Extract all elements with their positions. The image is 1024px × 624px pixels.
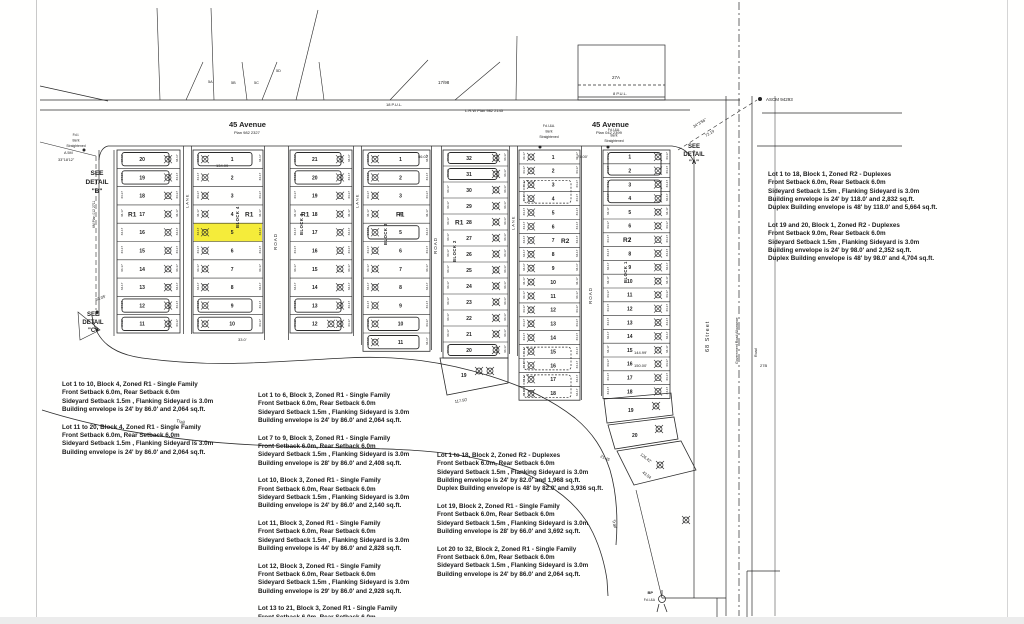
edge-dimension-label: 34.17 <box>503 201 507 209</box>
fan-lot-label: 5B <box>231 81 236 85</box>
edge-dimension-label: 34.17 <box>175 282 179 290</box>
survey-marker-icon <box>201 283 209 291</box>
lot-number-label: 8 <box>628 251 631 257</box>
left-plan-label: 6M Plan 012 2711 <box>92 201 96 228</box>
edge-dimension-label: 34.17 <box>258 154 262 162</box>
survey-marker-icon <box>527 389 535 397</box>
edge-dimension-label: 34.17 <box>446 313 450 321</box>
edge-dimension-label: 34.17 <box>575 194 579 202</box>
survey-marker-icon <box>486 367 494 375</box>
survey-marker-icon <box>475 367 483 375</box>
edge-dimension-label: 34.17 <box>120 282 124 290</box>
svg-text:SEE: SEE <box>87 312 99 318</box>
survey-marker-icon <box>201 173 209 181</box>
lot-number-label: 19 <box>628 408 634 414</box>
edge-dimension-label: 34.17 <box>522 208 526 216</box>
survey-marker-icon <box>371 302 379 310</box>
lot-number-label: 14 <box>550 335 556 341</box>
edge-dimension-label: 34.17 <box>175 227 179 235</box>
edge-dimension-label: 34.17 <box>606 331 610 339</box>
edge-dimension-label: 34.17 <box>446 281 450 289</box>
survey-marker-icon <box>336 228 344 236</box>
edge-dimension-label: 34.17 <box>258 191 262 199</box>
edge-dimension-label: 34.17 <box>120 209 124 217</box>
survey-marker-icon <box>527 167 535 175</box>
survey-marker-icon <box>492 314 500 322</box>
survey-marker-icon <box>201 192 209 200</box>
survey-marker-icon <box>371 228 379 236</box>
survey-marker-icon <box>164 192 172 200</box>
edge-dimension-label: 34.17 <box>606 221 610 229</box>
edge-dimension-label: 34.17 <box>120 172 124 180</box>
edge-dimension-label: 34.17 <box>446 169 450 177</box>
edge-dimension-label: 34.17 <box>575 333 579 341</box>
edge-dimension-label: 34.17 <box>120 264 124 272</box>
survey-marker-icon <box>371 210 379 218</box>
edge-dimension-label: 34.17 <box>606 276 610 284</box>
lot-number-label: 20 <box>312 175 318 181</box>
edge-dimension-label: 34.17 <box>175 301 179 309</box>
lot-number-label: 5 <box>552 210 555 216</box>
dimension-label: 43.54 <box>641 470 653 481</box>
edge-dimension-label: 34.17 <box>522 235 526 243</box>
survey-marker-icon <box>527 278 535 286</box>
lot-number-label: 8 <box>552 252 555 258</box>
block-label: BLOCK 1 <box>623 261 628 283</box>
edge-dimension-label: 34.17 <box>575 221 579 229</box>
lane-label-3: LANE <box>511 216 516 230</box>
survey-marker-icon <box>492 266 500 274</box>
lot-number-label: 10 <box>229 322 235 328</box>
found-iron-note-line: Straightened <box>539 135 558 139</box>
survey-marker-icon <box>527 195 535 203</box>
survey-marker-icon <box>492 234 500 242</box>
see-detail-c: SEE DETAIL "C" <box>82 312 104 334</box>
survey-marker-icon <box>527 181 535 189</box>
survey-marker-icon <box>654 236 662 244</box>
lot-strip-block3-west: 2134.1734.172034.1734.171934.1734.171834… <box>290 150 352 333</box>
lot-number-label: 6 <box>399 248 402 254</box>
lane-label-2: LANE <box>355 194 360 208</box>
edge-dimension-label: 34.17 <box>347 172 351 180</box>
survey-marker-icon <box>201 320 209 328</box>
lot-number-label: 10 <box>398 322 404 328</box>
ascm-label: ASCM 94293 <box>766 97 793 102</box>
street-68-label: 68 Street <box>705 321 711 352</box>
lot-number-label: 6 <box>231 248 234 254</box>
edge-dimension-label: 34.17 <box>522 221 526 229</box>
edge-dimension-label: 34.17 <box>366 246 370 254</box>
found-iron-note-line: Straightened <box>66 144 85 148</box>
lot-number-label: 3 <box>231 194 234 200</box>
edge-dimension-label: 34.17 <box>665 179 669 187</box>
edge-dimension-label: 34.17 <box>503 153 507 161</box>
edge-dimension-label: 34.17 <box>196 209 200 217</box>
lot-strip-block3-east: 134.1734.17234.1734.17334.1734.17434.173… <box>363 150 430 351</box>
edge-dimension-label: 34.17 <box>425 172 429 180</box>
found-iron-notes: Fd.I.BentStraightenedFd.I.&A.BentStraigh… <box>66 124 623 148</box>
lot-number-label: 13 <box>312 303 318 309</box>
edge-dimension-label: 34.17 <box>575 291 579 299</box>
found-iron-note-line: Fd.I.&A. <box>543 124 555 128</box>
lot-number-label: 14 <box>627 334 633 340</box>
edge-dimension-label: 34.17 <box>425 264 429 272</box>
lot-number-label: 3 <box>399 194 402 200</box>
block-label: BLOCK 4 <box>235 206 240 228</box>
zone-label: R1 <box>128 212 137 219</box>
lot-number-label: 27 <box>466 236 472 242</box>
lot-number-label: 17 <box>627 376 633 382</box>
zone-label: R2 <box>623 237 632 244</box>
survey-marker-icon <box>656 461 664 469</box>
lot-number-label: 4 <box>231 212 234 218</box>
edge-dimension-label: 34.17 <box>196 282 200 290</box>
lot-number-label: 17 <box>312 230 318 236</box>
lot-number-label: 1 <box>231 157 234 163</box>
survey-marker-icon <box>336 173 344 181</box>
survey-marker-icon <box>371 192 379 200</box>
scan-edge-left <box>36 0 37 617</box>
edge-dimension-label: 34.17 <box>293 154 297 162</box>
lot-number-label: 9 <box>628 265 631 271</box>
edge-dimension-label: 34.17 <box>347 264 351 272</box>
edge-dimension-label: 34.17 <box>575 263 579 271</box>
block1-sliver <box>617 441 696 524</box>
edge-dimension-label: 34.17 <box>120 227 124 235</box>
left-road-lines <box>99 150 114 336</box>
survey-marker-icon <box>336 192 344 200</box>
lot-strip-block1: 134.1734.17234.1734.17334.1734.17434.173… <box>603 150 670 398</box>
edge-dimension-label: 34.17 <box>575 277 579 285</box>
survey-marker-icon <box>654 263 662 271</box>
lot-number-label: 19 <box>139 175 145 181</box>
scan-edge-bottom <box>0 617 1024 624</box>
edge-dimension-label: 34.17 <box>606 359 610 367</box>
found-iron-note-line: Fd.I.&A. <box>608 128 620 132</box>
edge-dimension-label: 34.17 <box>575 305 579 313</box>
zone-label: R1 <box>455 220 464 227</box>
fan-lot-label: 5C <box>254 81 259 85</box>
edge-dimension-label: 34.17 <box>366 282 370 290</box>
edge-dimension-label: 34.17 <box>347 209 351 217</box>
lrw-plan-label: L.R.W Plan 982 2145 <box>465 108 504 113</box>
survey-marker-icon <box>164 173 172 181</box>
left-bearing-label: 33°18'12" <box>58 158 75 162</box>
edge-dimension-label: 34.17 <box>446 217 450 225</box>
lot-number-label: 9 <box>552 266 555 272</box>
fan-lot-label: 5A <box>208 80 213 84</box>
lot-number-label: 16 <box>312 248 318 254</box>
edge-dimension-label: 34.17 <box>522 277 526 285</box>
survey-marker-icon <box>527 348 535 356</box>
edge-dimension-label: 34.17 <box>366 172 370 180</box>
lot-number-label: 18 <box>312 212 318 218</box>
survey-marker-icon <box>527 361 535 369</box>
lot-number-label: 5 <box>231 230 234 236</box>
edge-dimension-label: 34.17 <box>522 152 526 160</box>
see-detail-a: SEE DETAIL "A" <box>683 144 705 166</box>
edge-dimension-label: 34.17 <box>665 317 669 325</box>
edge-dimension-label: 34.17 <box>258 209 262 217</box>
survey-marker-icon <box>371 338 379 346</box>
survey-marker-icon <box>527 153 535 161</box>
edge-dimension-label: 34.17 <box>366 191 370 199</box>
dimension-label: 126.42' <box>639 452 653 464</box>
lot-number-label: 6 <box>628 224 631 230</box>
survey-marker-icon <box>654 222 662 230</box>
lot-number-label: 12 <box>627 307 633 313</box>
survey-marker-icon <box>527 306 535 314</box>
lot-number-label: 15 <box>139 248 145 254</box>
lot-27a-label: 27A <box>612 75 620 80</box>
lot-number-label: 13 <box>627 320 633 326</box>
dimension-label: 134.99 <box>216 163 229 168</box>
fraction-label: 17/98 <box>438 80 450 85</box>
edge-dimension-label: 34.17 <box>196 319 200 327</box>
edge-dimension-label: 34.17 <box>446 265 450 273</box>
block2-lot19: 19 <box>440 358 508 395</box>
dimension-label: 117.50' <box>454 397 468 404</box>
edge-dimension-label: 34.17 <box>503 249 507 257</box>
lot-number-label: 16 <box>627 362 633 368</box>
lot-number-label: 29 <box>466 204 472 210</box>
survey-marker-icon <box>336 155 344 163</box>
edge-dimension-label: 34.17 <box>575 208 579 216</box>
edge-dimension-label: 34.17 <box>522 249 526 257</box>
gov-road-allowance-label: Government Road Allowance <box>735 317 739 364</box>
survey-marker-icon <box>201 302 209 310</box>
edge-dimension-label: 34.17 <box>665 235 669 243</box>
lot-number-label: 12 <box>550 308 556 314</box>
edge-dimension-label: 34.17 <box>665 207 669 215</box>
highlighted-lot <box>194 223 262 241</box>
survey-marker-icon <box>336 247 344 255</box>
edge-dimension-label: 34.17 <box>575 374 579 382</box>
lot-number-label: 7 <box>552 238 555 244</box>
edge-dimension-label: 34.17 <box>522 291 526 299</box>
survey-marker-icon <box>492 218 500 226</box>
lot-number-label: 25 <box>466 268 472 274</box>
lot-number-label: 20 <box>139 157 145 163</box>
edge-dimension-label: 34.17 <box>665 193 669 201</box>
edge-dimension-label: 34.17 <box>293 264 297 272</box>
edge-dimension-label: 34.17 <box>347 282 351 290</box>
survey-marker-icon <box>492 298 500 306</box>
lot-number-label: 12 <box>312 322 318 328</box>
survey-marker-icon <box>654 305 662 313</box>
lot-number-label: 5 <box>628 210 631 216</box>
survey-marker-icon <box>371 155 379 163</box>
edge-dimension-label: 34.17 <box>120 319 124 327</box>
survey-marker-icon <box>336 265 344 273</box>
lot-number-label: 5 <box>399 230 402 236</box>
survey-marker-icon <box>652 402 660 410</box>
lot-number-label: 23 <box>466 300 472 306</box>
lot-number-label: 18 <box>627 389 633 395</box>
lot-number-label: 11 <box>398 340 404 346</box>
edge-dimension-label: 34.17 <box>606 386 610 394</box>
bp-marker-sublabel: Fd.I.&A <box>644 598 656 602</box>
edge-dimension-label: 34.17 <box>522 166 526 174</box>
survey-marker-icon <box>655 425 663 433</box>
edge-dimension-label: 34.17 <box>347 301 351 309</box>
edge-dimension-label: 34.17 <box>425 282 429 290</box>
bp-survey-marker-icon <box>657 590 667 612</box>
lot-number-label: 32 <box>466 156 472 162</box>
survey-marker-icon <box>492 186 500 194</box>
survey-marker-icon <box>164 320 172 328</box>
survey-marker-icon <box>654 319 662 327</box>
edge-dimension-label: 34.17 <box>425 246 429 254</box>
edge-dimension-label: 34.17 <box>665 304 669 312</box>
edge-dimension-label: 34.17 <box>606 317 610 325</box>
survey-marker-icon <box>164 265 172 273</box>
survey-marker-icon <box>527 236 535 244</box>
lot-number-label: 2 <box>628 169 631 175</box>
survey-marker-icon <box>336 320 344 328</box>
survey-marker-icon <box>371 320 379 328</box>
edge-dimension-label: 34.17 <box>196 191 200 199</box>
dimension-label: 144.99' <box>634 350 647 355</box>
edge-dimension-label: 34.17 <box>665 166 669 174</box>
lot-number-label: 18 <box>550 391 556 397</box>
irregular-lots: 191920 <box>440 358 696 524</box>
lot-number-label: 7 <box>231 267 234 273</box>
edge-dimension-label: 34.17 <box>606 345 610 353</box>
edge-dimension-label: 34.17 <box>175 209 179 217</box>
lot-number-label: 19 <box>312 194 318 200</box>
edge-dimension-label: 34.17 <box>606 262 610 270</box>
survey-marker-icon <box>492 282 500 290</box>
edge-dimension-label: 34.17 <box>425 191 429 199</box>
lot-number-label: 13 <box>550 322 556 328</box>
lot-number-label: 7 <box>399 267 402 273</box>
edge-dimension-label: 34.17 <box>366 209 370 217</box>
survey-marker-icon <box>527 250 535 258</box>
block-label: BLOCK 3 <box>383 223 388 245</box>
survey-marker-icon <box>336 210 344 218</box>
lot-number-label: 30 <box>466 188 472 194</box>
edge-dimension-label: 34.17 <box>366 264 370 272</box>
survey-marker-icon <box>371 247 379 255</box>
survey-marker-icon <box>527 222 535 230</box>
edge-dimension-label: 34.17 <box>665 152 669 160</box>
survey-marker-icon <box>654 332 662 340</box>
lot-strip-block2-west: 3234.1734.173134.1734.173034.1734.172934… <box>443 150 508 358</box>
edge-dimension-label: 34.17 <box>347 319 351 327</box>
edge-dimension-label: 34.17 <box>606 248 610 256</box>
edge-dimension-label: 34.17 <box>575 347 579 355</box>
survey-marker-icon <box>164 283 172 291</box>
edge-dimension-label: 34.17 <box>606 290 610 298</box>
survey-marker-icon <box>527 320 535 328</box>
survey-marker-icon <box>201 247 209 255</box>
edge-dimension-label: 34.17 <box>446 297 450 305</box>
edge-dimension-label: 34.17 <box>606 304 610 312</box>
survey-marker-icon <box>492 330 500 338</box>
survey-marker-icon <box>164 155 172 163</box>
lot-number-label: 6 <box>552 224 555 230</box>
edge-dimension-label: 34.17 <box>425 337 429 345</box>
lot-number-label: 21 <box>466 332 472 338</box>
lot-number-label: 31 <box>466 172 472 178</box>
edge-dimension-label: 34.17 <box>665 331 669 339</box>
lot-number-label: 4 <box>552 196 555 202</box>
lot-number-label: 2 <box>231 175 234 181</box>
edge-dimension-label: 34.17 <box>446 185 450 193</box>
survey-marker-icon <box>492 154 500 162</box>
survey-marker-icon <box>201 228 209 236</box>
survey-marker-icon <box>371 173 379 181</box>
block-label: BLOCK 2 <box>452 240 457 262</box>
edge-dimension-label: 34.17 <box>347 246 351 254</box>
lot-number-label: 19 <box>461 373 467 379</box>
lot-number-label: 24 <box>466 284 472 290</box>
edge-dimension-label: 34.17 <box>293 191 297 199</box>
lot-number-label: 9 <box>231 303 234 309</box>
a5m-label: A 5M <box>64 151 73 155</box>
see-detail-b: SEE DETAIL "B" <box>86 170 109 195</box>
road-small-label: Road <box>754 348 758 357</box>
lot-strip-block2-east: 134.1734.17234.1734.17334.1734.17434.173… <box>519 150 580 400</box>
edge-dimension-label: 34.17 <box>366 227 370 235</box>
pul-18-label: 18 P.U.L. <box>386 102 402 107</box>
dimension-label: 150.00' <box>634 363 647 368</box>
found-iron-note-line: Bent <box>611 134 618 138</box>
edge-dimension-label: 34.17 <box>503 281 507 289</box>
edge-dimension-label: 34.17 <box>503 217 507 225</box>
survey-marker-icon <box>164 302 172 310</box>
survey-marker-icon <box>201 265 209 273</box>
lot-number-label: 18 <box>139 194 145 200</box>
edge-dimension-label: 34.17 <box>503 313 507 321</box>
edge-dimension-label: 34.17 <box>366 154 370 162</box>
found-iron-note-line: Bent <box>546 130 553 134</box>
edge-dimension-label: 34.17 <box>175 191 179 199</box>
survey-marker-icon <box>654 374 662 382</box>
lot-number-label: 14 <box>312 285 318 291</box>
lot-number-label: 8 <box>231 285 234 291</box>
edge-dimension-label: 34.17 <box>196 154 200 162</box>
svg-text:"A": "A" <box>689 160 699 166</box>
lot-number-label: 12 <box>139 303 145 309</box>
edge-dimension-label: 34.17 <box>575 360 579 368</box>
lot-number-label: 11 <box>627 293 633 299</box>
lot-number-label: 28 <box>466 220 472 226</box>
survey-marker-icon <box>654 346 662 354</box>
plat-document: 45 Avenue Plan 982 2327 45 Avenue Plan 0… <box>0 0 1024 624</box>
zone-label: R1 <box>396 212 405 219</box>
edge-dimension-label: 34.17 <box>196 264 200 272</box>
survey-marker-icon <box>336 283 344 291</box>
edge-dimension-label: 34.17 <box>258 264 262 272</box>
survey-marker-icon <box>371 283 379 291</box>
survey-marker-icon <box>654 250 662 258</box>
road-label-2: ROAD <box>433 237 438 254</box>
edge-dimension-label: 34.17 <box>196 246 200 254</box>
lot-number-label: 2 <box>552 169 555 175</box>
survey-marker-icon <box>527 264 535 272</box>
dimension-label: 21.45 <box>600 453 612 462</box>
edge-dimension-label: 34.17 <box>665 373 669 381</box>
found-iron-note-line: Straightened <box>604 139 623 143</box>
survey-marker-icon <box>654 360 662 368</box>
ascm-marker-dot <box>758 97 762 101</box>
avenue-left-label: 45 Avenue <box>229 120 266 129</box>
edge-dimension-label: 34.17 <box>522 263 526 271</box>
scan-edge-right <box>1007 0 1008 617</box>
dimension-label: 33.0' <box>238 337 247 342</box>
